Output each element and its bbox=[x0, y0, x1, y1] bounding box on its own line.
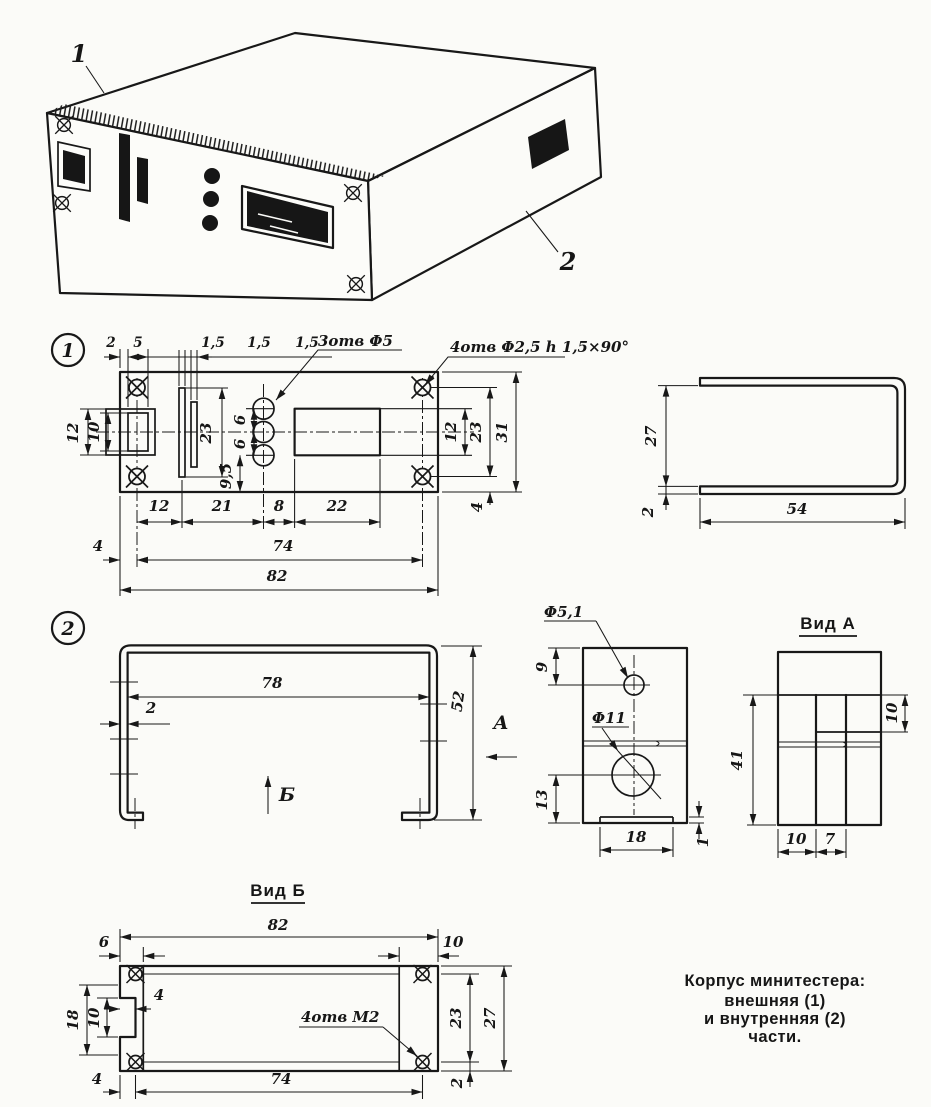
dim-54: 54 bbox=[787, 500, 808, 518]
screw-icon bbox=[347, 275, 365, 293]
caption-line-1: Корпус минитестера: bbox=[684, 972, 865, 990]
view-a-title: Вид А bbox=[800, 614, 856, 633]
dim-23-right: 23 bbox=[467, 422, 485, 444]
dim-21: 21 bbox=[211, 497, 233, 515]
dim-8: 8 bbox=[274, 497, 285, 515]
screw-icon bbox=[55, 116, 73, 134]
dim-6a: 6 bbox=[231, 414, 249, 425]
screw-icon bbox=[344, 184, 362, 202]
view-b: Вид Б bbox=[64, 881, 512, 1099]
view1-front-panel: 1 bbox=[52, 332, 629, 596]
dim-31: 31 bbox=[493, 422, 511, 443]
view-a-geometry bbox=[778, 652, 881, 825]
dim-82: 82 bbox=[267, 567, 288, 585]
dim-7: 7 bbox=[825, 830, 836, 848]
dim-4-notch: 4 bbox=[154, 986, 164, 1004]
side-panel-view: Φ5,1 Φ11 9 13 18 1 bbox=[533, 603, 712, 857]
dim-18-b: 18 bbox=[64, 1009, 82, 1030]
arrow-b-label: Б bbox=[278, 784, 295, 806]
callout-1-leader bbox=[86, 66, 104, 93]
view1-dimension-lines bbox=[80, 349, 565, 596]
dim-78: 78 bbox=[262, 674, 283, 692]
dim-2-b: 2 bbox=[448, 1078, 466, 1089]
dim-23-mid: 23 bbox=[197, 423, 215, 445]
dim-1: 1 bbox=[694, 837, 712, 847]
dim-41: 41 bbox=[728, 750, 746, 771]
label-4otv-m2: 4отв М2 bbox=[301, 1008, 379, 1026]
dim-1-5: 1,5 bbox=[201, 335, 225, 351]
dim-6: 6 bbox=[99, 933, 110, 951]
dim-10-bottom: 10 bbox=[786, 830, 807, 848]
view1-badge: 1 bbox=[61, 340, 74, 362]
slot-1 bbox=[119, 133, 130, 222]
dim-4-b: 4 bbox=[92, 1070, 102, 1088]
label-phi-5-1: Φ5,1 bbox=[544, 603, 583, 621]
dim-10-left: 10 bbox=[85, 421, 103, 442]
label-3otv: 3отв Φ5 bbox=[318, 332, 393, 350]
callout-2-label: 2 bbox=[559, 247, 577, 276]
dim-52: 52 bbox=[448, 690, 469, 713]
hole-3 bbox=[202, 215, 218, 231]
channel-profile bbox=[700, 378, 905, 494]
view-b-title: Вид Б bbox=[250, 881, 305, 900]
view-a: Вид А 10 41 10 7 bbox=[728, 614, 908, 858]
arrow-a-label: А bbox=[491, 712, 508, 734]
dim-9: 9 bbox=[533, 661, 551, 672]
hole-1 bbox=[204, 168, 220, 184]
dim-4-bottom: 4 bbox=[93, 537, 103, 555]
dim-2-channel: 2 bbox=[639, 507, 657, 518]
caption-line-2: внешняя (1) bbox=[724, 992, 825, 1010]
caption: Корпус минитестера: внешняя (1) и внутре… bbox=[684, 972, 865, 1046]
dim-27: 27 bbox=[642, 425, 660, 447]
dim-74: 74 bbox=[273, 537, 294, 555]
bracket-break-marks bbox=[110, 682, 447, 829]
dim-10-top: 10 bbox=[443, 933, 464, 951]
rear-slot bbox=[528, 119, 569, 169]
callout-2-leader bbox=[526, 211, 558, 252]
dim-4-right: 4 bbox=[468, 502, 486, 512]
bracket-dimension-lines bbox=[100, 646, 517, 820]
dim-13: 13 bbox=[533, 790, 551, 811]
label-phi-11: Φ11 bbox=[592, 709, 626, 727]
dim-5: 5 bbox=[133, 335, 142, 351]
dim-22: 22 bbox=[326, 497, 348, 515]
callout-1-label: 1 bbox=[71, 39, 88, 68]
label-4otv: 4отв Φ2,5 h 1,5×90° bbox=[450, 338, 629, 356]
drawing-sheet: 1 2 1 bbox=[0, 0, 931, 1107]
channel-dimension-lines bbox=[658, 386, 905, 529]
isometric-view: 1 2 bbox=[47, 33, 601, 300]
screw-icon bbox=[53, 194, 71, 212]
dim-1-5: 1,5 bbox=[295, 335, 319, 351]
view-b-geometry bbox=[120, 965, 438, 1071]
view2-badge: 2 bbox=[60, 618, 74, 640]
dim-27-b: 27 bbox=[481, 1007, 499, 1029]
caption-line-4: части. bbox=[748, 1028, 801, 1046]
channel-side-view: 27 2 54 bbox=[639, 378, 905, 529]
view1-dimension-labels: 2 5 1,5 1,5 1,5 3отв Φ5 4отв Φ2,5 h 1,5×… bbox=[64, 332, 629, 585]
view2-bracket: 2 78 2 52 А Б bbox=[52, 612, 517, 829]
side-panel-dimension-lines bbox=[544, 621, 704, 857]
dim-12-left: 12 bbox=[64, 423, 82, 444]
slot-2 bbox=[137, 157, 148, 204]
dim-74-b: 74 bbox=[271, 1070, 292, 1088]
dim-23-b: 23 bbox=[447, 1008, 465, 1030]
side-panel-geometry bbox=[548, 655, 687, 823]
dim-6b: 6 bbox=[231, 438, 249, 449]
dim-18: 18 bbox=[626, 828, 647, 846]
hole-2 bbox=[203, 191, 219, 207]
dim-2: 2 bbox=[105, 335, 115, 351]
socket-opening bbox=[63, 150, 85, 184]
dim-10-left-b: 10 bbox=[85, 1007, 103, 1028]
dim-10-right: 10 bbox=[883, 702, 901, 723]
minitester-case-drawing: 1 2 1 bbox=[0, 0, 931, 1107]
dim-82-b: 82 bbox=[268, 916, 289, 934]
dim-2-bracket: 2 bbox=[145, 699, 156, 717]
dim-1-5: 1,5 bbox=[247, 335, 271, 351]
dim-12-bottom: 12 bbox=[149, 497, 170, 515]
dim-9-5: 9,5 bbox=[217, 463, 235, 489]
dim-12-right: 12 bbox=[442, 422, 460, 443]
caption-line-3: и внутренняя (2) bbox=[704, 1010, 846, 1028]
